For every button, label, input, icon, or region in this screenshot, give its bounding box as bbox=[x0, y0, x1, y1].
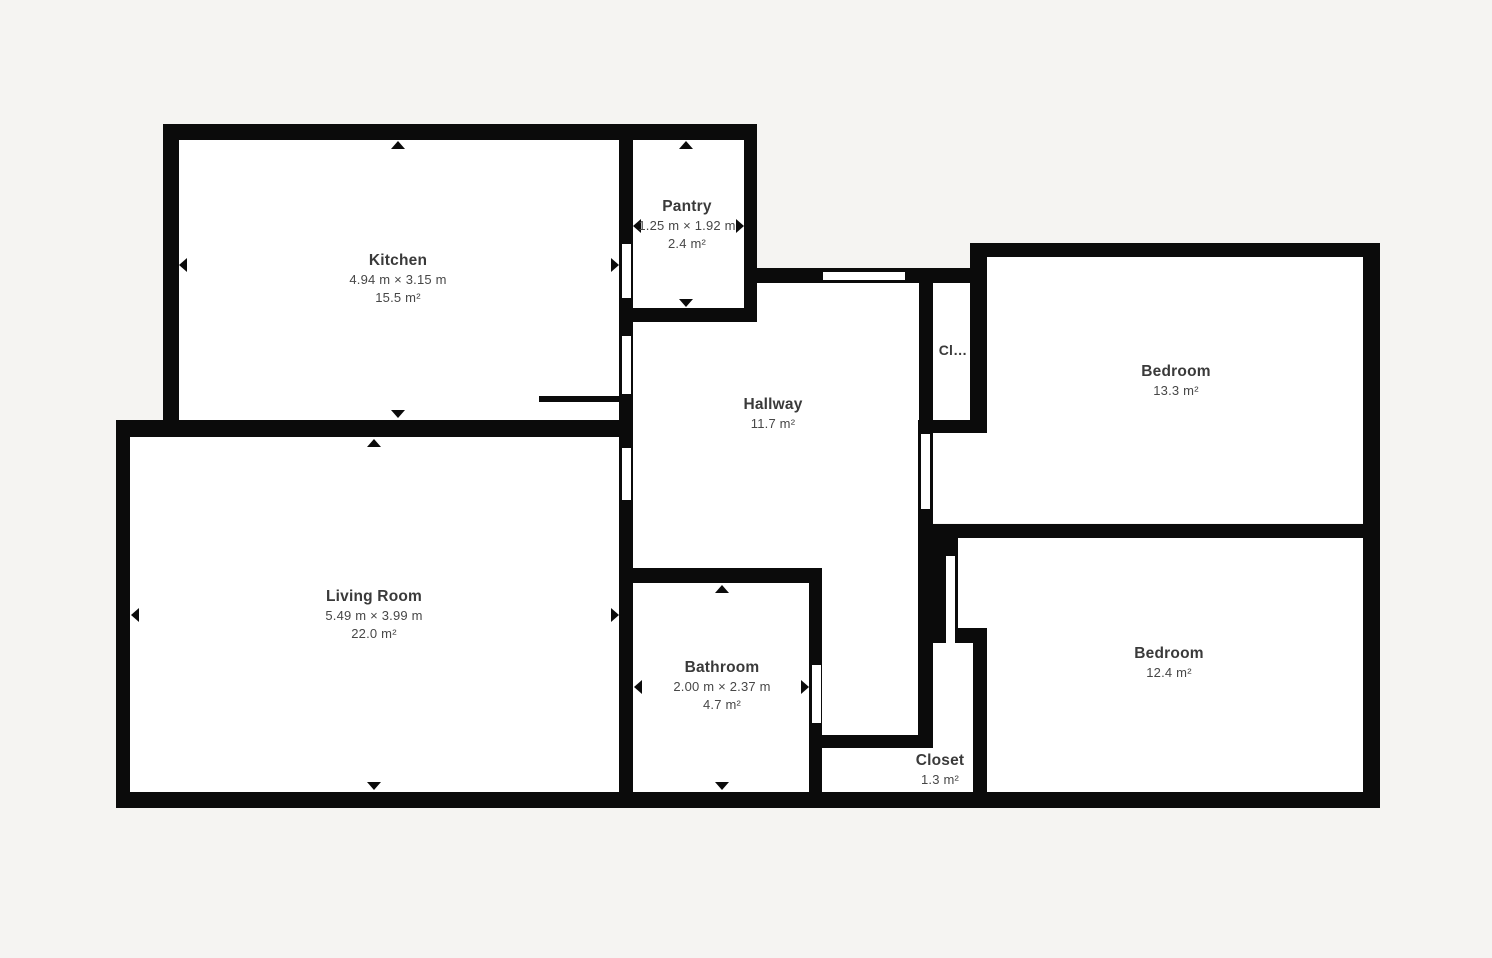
hallway-name: Hallway bbox=[743, 395, 802, 414]
hallway-area: 11.7 m² bbox=[743, 415, 802, 433]
living-dimension-arrow-left-icon bbox=[131, 608, 139, 622]
wall-pantry-bottom bbox=[630, 308, 757, 322]
room-label-pantry: Pantry 1.25 m × 1.92 m 2.4 m² bbox=[638, 197, 735, 253]
hallway-floor-left bbox=[633, 322, 757, 568]
wall-bedroom-1-left bbox=[970, 243, 987, 433]
pantry-dimension-arrow-right-icon bbox=[736, 219, 744, 233]
closet-small-name: Cl… bbox=[939, 341, 968, 360]
room-label-bedroom-2: Bedroom 12.4 m² bbox=[1134, 644, 1203, 682]
window-hallway bbox=[823, 272, 905, 280]
wall-closet-small-left bbox=[919, 268, 933, 420]
room-label-bathroom: Bathroom 2.00 m × 2.37 m 4.7 m² bbox=[673, 658, 770, 714]
bedroom-1-floor-ext bbox=[933, 433, 987, 523]
wall-top-kitchen-pantry bbox=[163, 124, 757, 140]
closet-area: 1.3 m² bbox=[916, 771, 965, 789]
kitchen-dimensions: 4.94 m × 3.15 m bbox=[349, 271, 446, 289]
room-label-bedroom-1: Bedroom 13.3 m² bbox=[1141, 362, 1210, 400]
living-dimension-arrow-up-icon bbox=[367, 439, 381, 447]
floor-plan: Kitchen 4.94 m × 3.15 m 15.5 m² Pantry 1… bbox=[0, 0, 1492, 958]
door-leaf-kitchen bbox=[539, 396, 619, 402]
door-kitchen-hallway bbox=[622, 336, 631, 394]
wall-closet-door-cap bbox=[944, 538, 958, 556]
door-bathroom bbox=[812, 665, 821, 723]
room-label-kitchen: Kitchen 4.94 m × 3.15 m 15.5 m² bbox=[349, 251, 446, 307]
door-living-hallway bbox=[622, 448, 631, 500]
living-dimension-arrow-down-icon bbox=[367, 782, 381, 790]
pantry-dimensions: 1.25 m × 1.92 m bbox=[638, 217, 735, 235]
kitchen-dimension-arrow-right-icon bbox=[611, 258, 619, 272]
room-label-closet: Closet 1.3 m² bbox=[916, 751, 965, 789]
kitchen-dimension-arrow-left-icon bbox=[179, 258, 187, 272]
room-label-closet-small: Cl… bbox=[939, 341, 968, 361]
door-leaf-closet bbox=[943, 556, 958, 643]
bathroom-dimension-arrow-right-icon bbox=[801, 680, 809, 694]
pantry-dimension-arrow-down-icon bbox=[679, 299, 693, 307]
wall-closet-right bbox=[973, 628, 987, 793]
bathroom-dimensions: 2.00 m × 2.37 m bbox=[673, 678, 770, 696]
living-room-name: Living Room bbox=[325, 587, 422, 606]
door-hallway-bedroom-1 bbox=[921, 434, 930, 509]
wall-pantry-right bbox=[744, 124, 757, 322]
living-room-dimensions: 5.49 m × 3.99 m bbox=[325, 607, 422, 625]
closet-name: Closet bbox=[916, 751, 965, 770]
bathroom-name: Bathroom bbox=[673, 658, 770, 677]
bedroom-2-area: 12.4 m² bbox=[1134, 664, 1203, 682]
room-label-living-room: Living Room 5.49 m × 3.99 m 22.0 m² bbox=[325, 587, 422, 643]
wall-outer-right bbox=[1363, 243, 1380, 806]
wall-closet-left-upper bbox=[918, 524, 944, 643]
bathroom-dimension-arrow-up-icon bbox=[715, 585, 729, 593]
kitchen-name: Kitchen bbox=[349, 251, 446, 270]
kitchen-dimension-arrow-up-icon bbox=[391, 141, 405, 149]
door-kitchen-pantry bbox=[622, 244, 631, 298]
wall-bedroom-1-top bbox=[970, 243, 1380, 257]
room-label-hallway: Hallway 11.7 m² bbox=[743, 395, 802, 433]
pantry-area: 2.4 m² bbox=[638, 235, 735, 253]
living-room-area: 22.0 m² bbox=[325, 625, 422, 643]
wall-bathroom-top bbox=[619, 568, 822, 583]
bathroom-dimension-arrow-down-icon bbox=[715, 782, 729, 790]
bedroom-2-name: Bedroom bbox=[1134, 644, 1203, 663]
hallway-floor-lower bbox=[822, 568, 918, 735]
living-dimension-arrow-right-icon bbox=[611, 608, 619, 622]
wall-closet-left-lower bbox=[918, 628, 933, 748]
wall-bottom bbox=[116, 792, 1380, 808]
pantry-dimension-arrow-up-icon bbox=[679, 141, 693, 149]
wall-kitchen-left bbox=[163, 124, 179, 425]
bedroom-1-name: Bedroom bbox=[1141, 362, 1210, 381]
kitchen-area: 15.5 m² bbox=[349, 289, 446, 307]
wall-between-bedrooms bbox=[918, 524, 1380, 538]
bathroom-area: 4.7 m² bbox=[673, 696, 770, 714]
kitchen-dimension-arrow-down-icon bbox=[391, 410, 405, 418]
wall-living-left bbox=[116, 422, 130, 806]
bathroom-dimension-arrow-left-icon bbox=[634, 680, 642, 694]
pantry-name: Pantry bbox=[638, 197, 735, 216]
bedroom-1-area: 13.3 m² bbox=[1141, 382, 1210, 400]
wall-hallway-closet bbox=[822, 735, 933, 748]
wall-kitchen-living bbox=[116, 420, 633, 437]
